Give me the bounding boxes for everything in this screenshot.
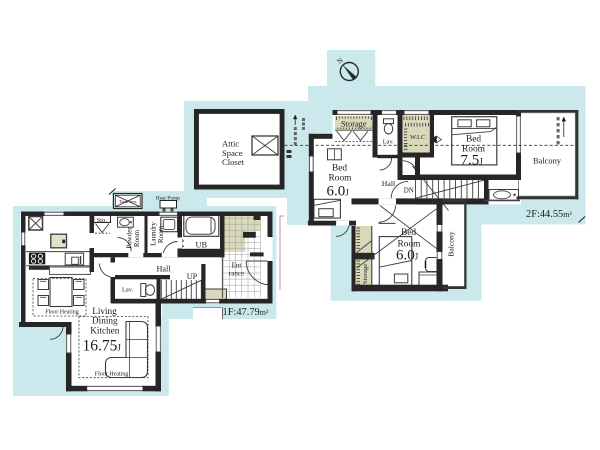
svg-text:Hall: Hall — [382, 179, 396, 188]
svg-text:Dining: Dining — [92, 315, 118, 325]
svg-text:Hall: Hall — [156, 264, 171, 273]
svg-text:Tank-less: Tank-less — [119, 199, 137, 204]
svg-text:Lav.: Lav. — [122, 286, 134, 293]
svg-text:Bed: Bed — [466, 134, 481, 144]
svg-text:Closet: Closet — [222, 157, 245, 167]
svg-text:Balcony: Balcony — [533, 157, 562, 166]
svg-text:1F:47.79m²: 1F:47.79m² — [223, 307, 269, 318]
svg-text:Room: Room — [329, 174, 353, 184]
svg-text:2F:44.55m²: 2F:44.55m² — [526, 209, 572, 220]
svg-text:Sto.: Sto. — [97, 217, 108, 224]
svg-text:Floor Heating: Floor Heating — [45, 310, 79, 316]
svg-text:UP: UP — [187, 272, 198, 281]
svg-text:Bed: Bed — [401, 228, 416, 238]
svg-text:Storage: Storage — [341, 120, 367, 129]
svg-text:Ent: Ent — [232, 262, 242, 270]
svg-text:Room: Room — [133, 229, 141, 247]
svg-text:rance: rance — [229, 270, 244, 278]
svg-text:16.75J: 16.75J — [83, 338, 122, 355]
svg-text:Balcony: Balcony — [447, 231, 456, 257]
svg-text:Room: Room — [157, 225, 165, 243]
svg-text:Floor Heating: Floor Heating — [95, 372, 129, 378]
svg-text:Storage: Storage — [362, 264, 369, 284]
svg-text:DN: DN — [404, 187, 414, 195]
svg-text:Bed: Bed — [332, 164, 347, 174]
svg-text:Kitchen: Kitchen — [90, 325, 119, 335]
svg-text:Lav.: Lav. — [383, 139, 395, 146]
svg-text:W.I.C: W.I.C — [410, 134, 425, 141]
svg-text:UB: UB — [195, 241, 207, 250]
